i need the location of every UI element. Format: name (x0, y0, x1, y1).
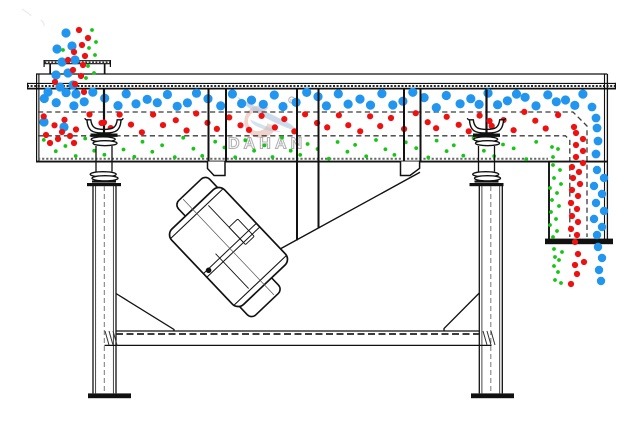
svg-text:DAHAN: DAHAN (228, 135, 306, 152)
